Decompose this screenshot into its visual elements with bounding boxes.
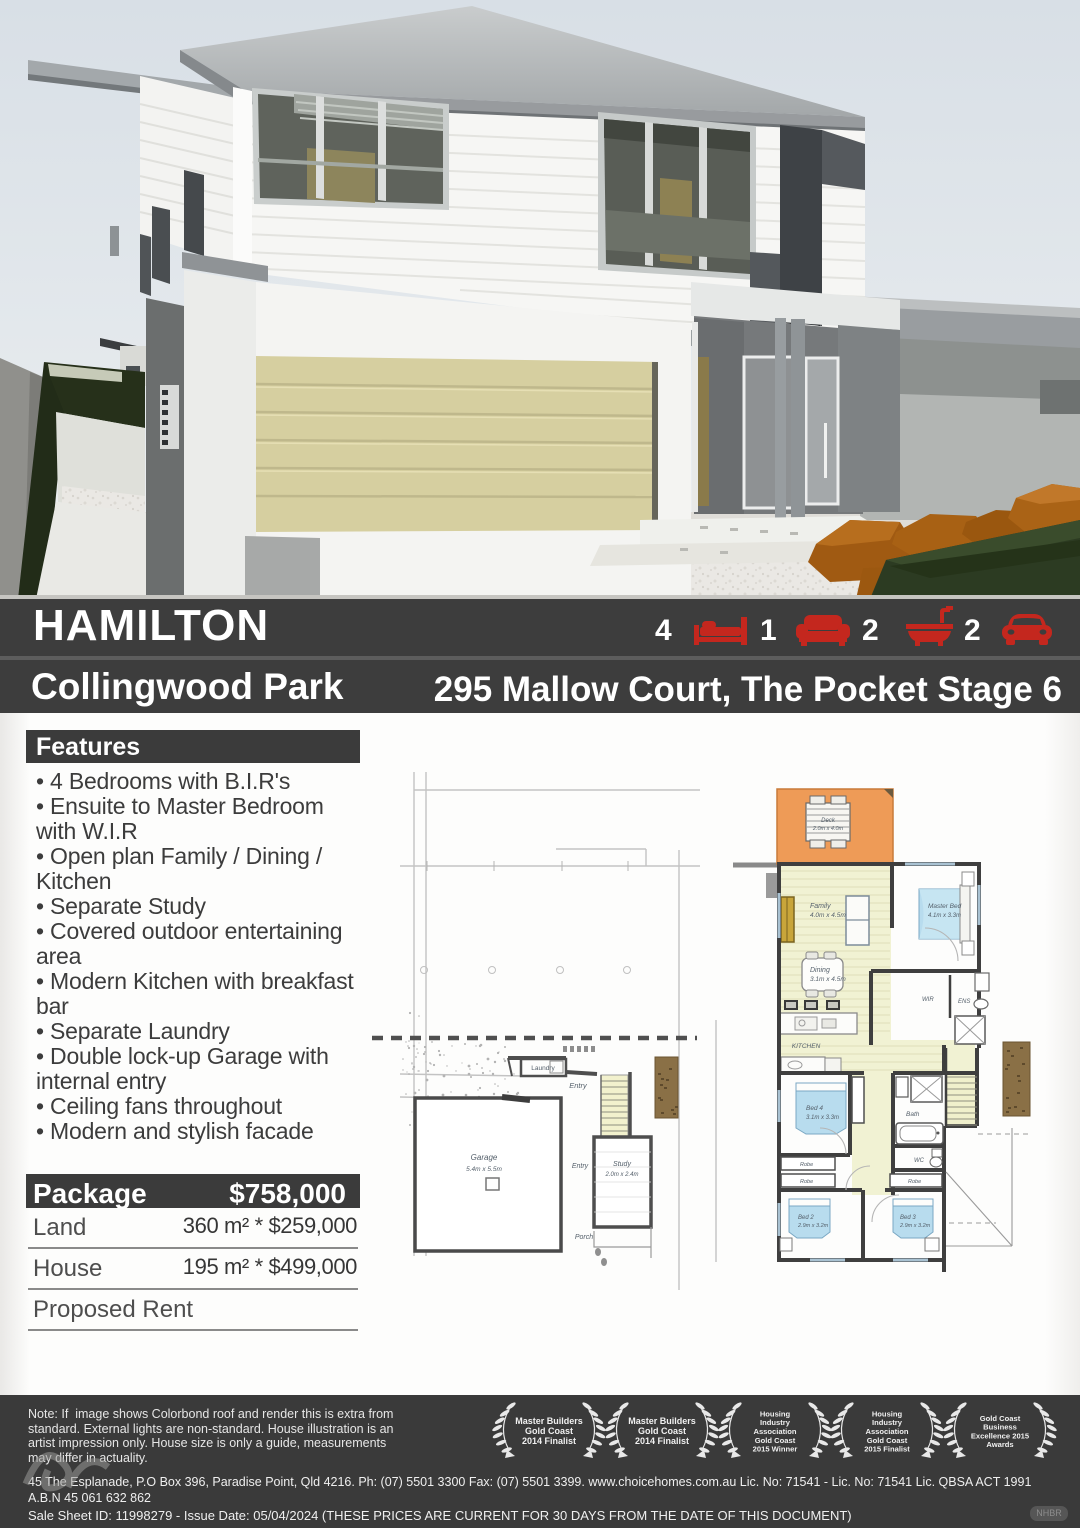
- svg-text:Business: Business: [983, 1423, 1017, 1432]
- svg-text:Association: Association: [753, 1427, 796, 1436]
- svg-text:2.9m x 3.2m: 2.9m x 3.2m: [899, 1223, 931, 1229]
- svg-text:2015 Finalist: 2015 Finalist: [864, 1445, 910, 1454]
- svg-text:4.1m x 3.3m: 4.1m x 3.3m: [928, 913, 961, 919]
- svg-text:Family: Family: [810, 903, 831, 910]
- svg-text:Entry: Entry: [572, 1163, 589, 1170]
- svg-text:Gold Coast: Gold Coast: [755, 1436, 796, 1445]
- svg-text:Deck: Deck: [821, 818, 836, 824]
- svg-text:Robe: Robe: [800, 1162, 813, 1168]
- svg-text:KITCHEN: KITCHEN: [792, 1043, 821, 1050]
- svg-text:Bath: Bath: [906, 1111, 920, 1118]
- svg-text:WC: WC: [914, 1158, 925, 1164]
- svg-text:Excellence 2015: Excellence 2015: [971, 1431, 1030, 1440]
- svg-text:2014 Finalist: 2014 Finalist: [522, 1436, 576, 1446]
- svg-text:ENS: ENS: [958, 999, 970, 1005]
- svg-text:Bed 4: Bed 4: [806, 1105, 823, 1112]
- svg-text:Association: Association: [865, 1427, 908, 1436]
- svg-text:Laundry: Laundry: [531, 1065, 555, 1072]
- svg-text:Gold Coast: Gold Coast: [525, 1426, 573, 1436]
- svg-text:2.9m x 3.2m: 2.9m x 3.2m: [797, 1223, 829, 1229]
- svg-text:Master Builders: Master Builders: [515, 1416, 583, 1426]
- svg-text:4.0m x 4.5m: 4.0m x 4.5m: [810, 912, 846, 919]
- svg-text:Master Bed: Master Bed: [928, 903, 962, 910]
- svg-text:Porch: Porch: [575, 1234, 593, 1241]
- svg-text:Housing: Housing: [872, 1409, 903, 1418]
- svg-text:2015 Winner: 2015 Winner: [753, 1445, 798, 1454]
- svg-text:Gold Coast: Gold Coast: [638, 1426, 686, 1436]
- svg-text:Study: Study: [613, 1161, 631, 1168]
- svg-text:Industry: Industry: [760, 1418, 791, 1427]
- svg-text:2.0m x 4.0m: 2.0m x 4.0m: [812, 826, 844, 832]
- svg-text:Entry: Entry: [569, 1081, 588, 1090]
- svg-text:2.0m x 2.4m: 2.0m x 2.4m: [604, 1172, 638, 1178]
- svg-text:Garage: Garage: [471, 1153, 498, 1162]
- svg-text:3.1m x 3.3m: 3.1m x 3.3m: [806, 1115, 839, 1121]
- svg-text:Bed 3: Bed 3: [900, 1215, 916, 1221]
- svg-text:3.1m x 4.5m: 3.1m x 4.5m: [810, 976, 846, 983]
- svg-text:Gold Coast: Gold Coast: [980, 1414, 1021, 1423]
- svg-text:Housing: Housing: [760, 1409, 791, 1418]
- svg-text:Robe: Robe: [800, 1179, 813, 1185]
- svg-text:Awards: Awards: [986, 1440, 1013, 1449]
- svg-text:Dining: Dining: [810, 967, 830, 974]
- svg-text:Robe: Robe: [908, 1179, 921, 1185]
- svg-text:Master Builders: Master Builders: [628, 1416, 696, 1426]
- svg-text:WIR: WIR: [922, 997, 934, 1003]
- svg-text:Gold Coast: Gold Coast: [867, 1436, 908, 1445]
- svg-text:Industry: Industry: [872, 1418, 903, 1427]
- svg-text:2014 Finalist: 2014 Finalist: [635, 1436, 689, 1446]
- svg-text:5.4m x 5.5m: 5.4m x 5.5m: [466, 1166, 502, 1173]
- svg-text:Bed 2: Bed 2: [798, 1215, 814, 1221]
